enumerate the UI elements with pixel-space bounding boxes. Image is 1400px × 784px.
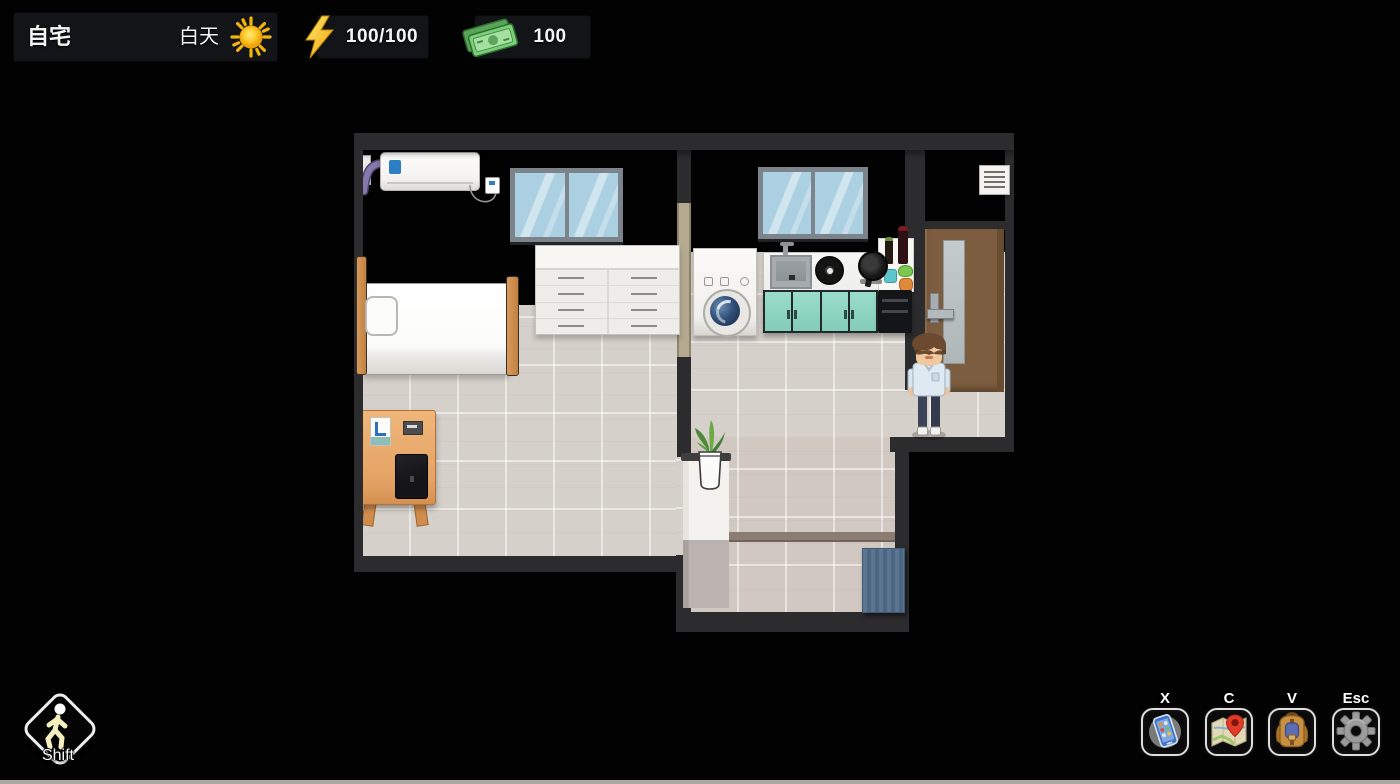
wok-pan[interactable]	[858, 251, 888, 281]
location-label: 自宅	[27, 13, 71, 61]
door-handle-grip	[927, 309, 954, 319]
phone-icon	[1144, 710, 1186, 755]
time-label: 白天	[179, 13, 219, 61]
game-map[interactable]	[354, 133, 1014, 632]
hotkey-label-phone: X	[1141, 690, 1189, 707]
wall-vent	[979, 165, 1010, 195]
teal-cabinets[interactable]	[763, 290, 878, 333]
wall-top	[354, 133, 1014, 150]
ac-logo	[389, 160, 401, 174]
hotkey-button-inventory[interactable]	[1268, 708, 1316, 756]
money-panel: 100	[475, 16, 590, 58]
bed-post-right	[506, 276, 519, 376]
energy-value: 100/100	[342, 16, 422, 58]
window-pane	[815, 172, 863, 234]
laptop[interactable]	[395, 454, 428, 499]
gear-icon	[1335, 710, 1377, 755]
run-indicator: Shift	[16, 694, 100, 778]
banknote-icon	[456, 11, 524, 70]
hotkey-button-map[interactable]	[1205, 708, 1253, 756]
window-pane	[515, 173, 565, 237]
ac-vent-line	[387, 182, 473, 184]
player-character	[904, 323, 954, 448]
hotkey-button-phone[interactable]	[1141, 708, 1189, 756]
window-mullion	[565, 173, 569, 237]
ac-remote-screen	[489, 181, 495, 185]
hotkey-button-settings[interactable]	[1332, 708, 1380, 756]
hotkey-label-inventory: V	[1268, 690, 1316, 707]
desk-card	[403, 421, 423, 435]
washer-controls	[700, 275, 750, 287]
kitchen-sink[interactable]	[770, 255, 812, 289]
energy-panel: 100/100	[318, 16, 428, 58]
window-pane	[569, 173, 619, 237]
window-pane	[763, 172, 811, 234]
stove-burner[interactable]	[815, 256, 844, 285]
sun-icon	[229, 15, 273, 64]
bedroom-window[interactable]	[510, 168, 623, 242]
wine-bottle	[898, 226, 908, 264]
wall-hall-bottom	[676, 612, 909, 632]
dresser-top	[536, 246, 679, 270]
dresser-drawers	[536, 270, 679, 334]
shoe-cabinet-base	[683, 540, 729, 608]
money-value: 100	[520, 16, 580, 58]
game-screen: 自宅 白天 100/100	[0, 0, 1400, 784]
map-pin-icon	[1208, 710, 1250, 755]
wall-living-bottom	[354, 556, 677, 572]
doormat[interactable]	[862, 548, 905, 613]
hotkey-label-settings: Esc	[1332, 690, 1380, 707]
hotkey-label-map: C	[1205, 690, 1253, 707]
kitchen-window[interactable]	[758, 167, 868, 239]
screen-bottom-edge	[0, 780, 1400, 784]
potted-plant[interactable]	[689, 416, 731, 495]
location-panel: 自宅 白天	[14, 13, 277, 61]
lightning-icon	[302, 15, 338, 64]
entry-threshold	[700, 532, 895, 542]
window-mullion	[811, 172, 815, 234]
green-vegetable	[898, 265, 913, 277]
washing-machine[interactable]	[693, 248, 757, 336]
notepad[interactable]	[370, 417, 391, 446]
ac-remote[interactable]	[485, 177, 500, 194]
bed-pillow	[365, 296, 398, 336]
run-key-label: Shift	[16, 747, 100, 765]
backpack-icon	[1271, 710, 1313, 755]
washer-door	[703, 289, 751, 337]
dresser[interactable]	[535, 245, 680, 335]
